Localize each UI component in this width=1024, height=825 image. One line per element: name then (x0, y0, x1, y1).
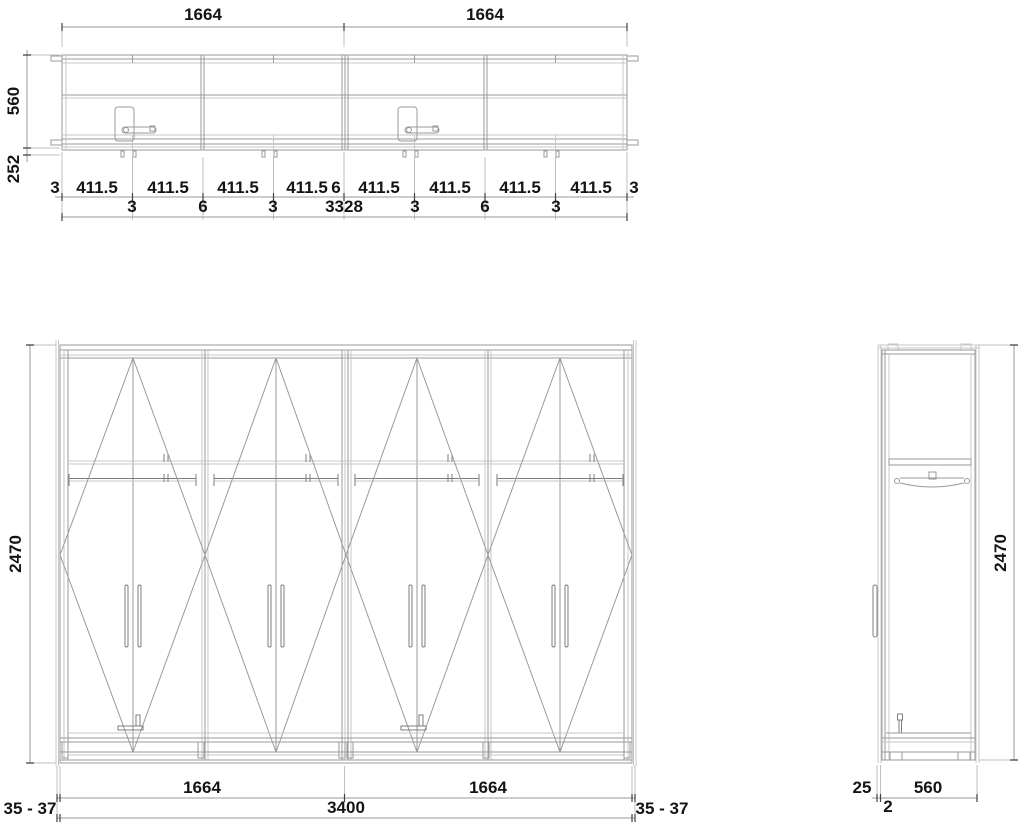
front-view-bottom-dimensions: 1664 1664 3400 35 - 37 35 - 37 (4, 766, 689, 822)
chain-lower-1: 6 (198, 197, 207, 216)
flap-lock-mechanism-right (398, 107, 439, 141)
dim-depth-560: 560 (4, 87, 23, 115)
shelf-profile (889, 459, 971, 465)
handle-profile (873, 585, 877, 637)
technical-drawing-sheet: 1664 1664 (0, 0, 1024, 825)
dim-unit-width-left: 1664 (183, 778, 221, 797)
chain-upper-3: 411.5 (217, 178, 259, 197)
chain-upper-6: 411.5 (358, 178, 400, 197)
dim-total-width-3400: 3400 (327, 798, 365, 817)
dim-side-height-2470: 2470 (991, 534, 1010, 572)
dim-height-2470: 2470 (6, 535, 25, 573)
chain-lower-4: 6 (480, 197, 489, 216)
flap-lock-mechanism-left (115, 107, 156, 141)
dim-wall-gap-left: 35 - 37 (4, 799, 57, 818)
chain-upper-7: 411.5 (429, 178, 471, 197)
hinge-marks (121, 151, 559, 157)
side-view: 2470 25 2 560 (853, 344, 1018, 816)
chain-upper-0: 3 (50, 178, 59, 197)
chain-upper-1: 411.5 (76, 178, 118, 197)
rail-support-clips (164, 454, 594, 482)
top-view-left-dimension: 560 252 (4, 50, 60, 183)
chain-lower-0: 3 (127, 197, 136, 216)
side-view-right-dimension: 2470 (979, 345, 1018, 760)
front-view-body (60, 345, 632, 763)
chain-upper-10: 3 (629, 178, 638, 197)
chain-lower-5: 3 (551, 197, 560, 216)
top-view-body (51, 55, 638, 157)
chain-upper-4: 411.5 (286, 178, 328, 197)
door-opening-symbols (60, 358, 632, 752)
dim-front-252: 252 (4, 155, 23, 183)
wardrobe-drawing: 1664 1664 (0, 0, 1024, 825)
dim-front-offset-25: 25 (853, 778, 872, 797)
wall-tab-icon (51, 56, 62, 61)
top-view-top-dimension: 1664 1664 (62, 5, 627, 47)
rail-bracket (895, 472, 970, 487)
chain-upper-9: 411.5 (570, 178, 612, 197)
dim-total-3328: 3328 (325, 197, 363, 216)
dim-wall-gap-right: 35 - 37 (636, 799, 689, 818)
chain-lower-2: 3 (268, 197, 277, 216)
dim-top-width-right: 1664 (466, 5, 504, 24)
side-plinth (882, 733, 975, 760)
top-view-bottom-dimensions: 3 411.5 411.5 411.5 411.5 6 411.5 411.5 … (50, 152, 638, 221)
wall-tab-icon (627, 140, 638, 145)
dim-gap-2: 2 (883, 797, 892, 816)
door-handles (125, 585, 568, 647)
wall-lines (56, 340, 636, 766)
wall-tab-icon (627, 56, 638, 61)
chain-upper-5: 6 (331, 178, 340, 197)
dim-top-width-left: 1664 (184, 5, 222, 24)
hanging-rails (69, 474, 623, 486)
wall-tab-icon (51, 140, 62, 145)
chain-upper-2: 411.5 (147, 178, 189, 197)
floor-lock-pin (898, 714, 903, 733)
side-view-bottom-dimensions: 25 2 560 (853, 765, 977, 816)
front-view: 2470 1664 1664 3400 35 - 37 35 - 37 (4, 340, 689, 822)
dim-unit-width-right: 1664 (469, 778, 507, 797)
plinth (60, 733, 632, 760)
chain-upper-8: 411.5 (499, 178, 541, 197)
top-view: 1664 1664 (4, 5, 639, 221)
chain-lower-3: 3 (410, 197, 419, 216)
front-view-left-dimension: 2470 (6, 345, 56, 763)
side-view-body (873, 344, 979, 763)
dim-side-depth-560: 560 (914, 778, 942, 797)
